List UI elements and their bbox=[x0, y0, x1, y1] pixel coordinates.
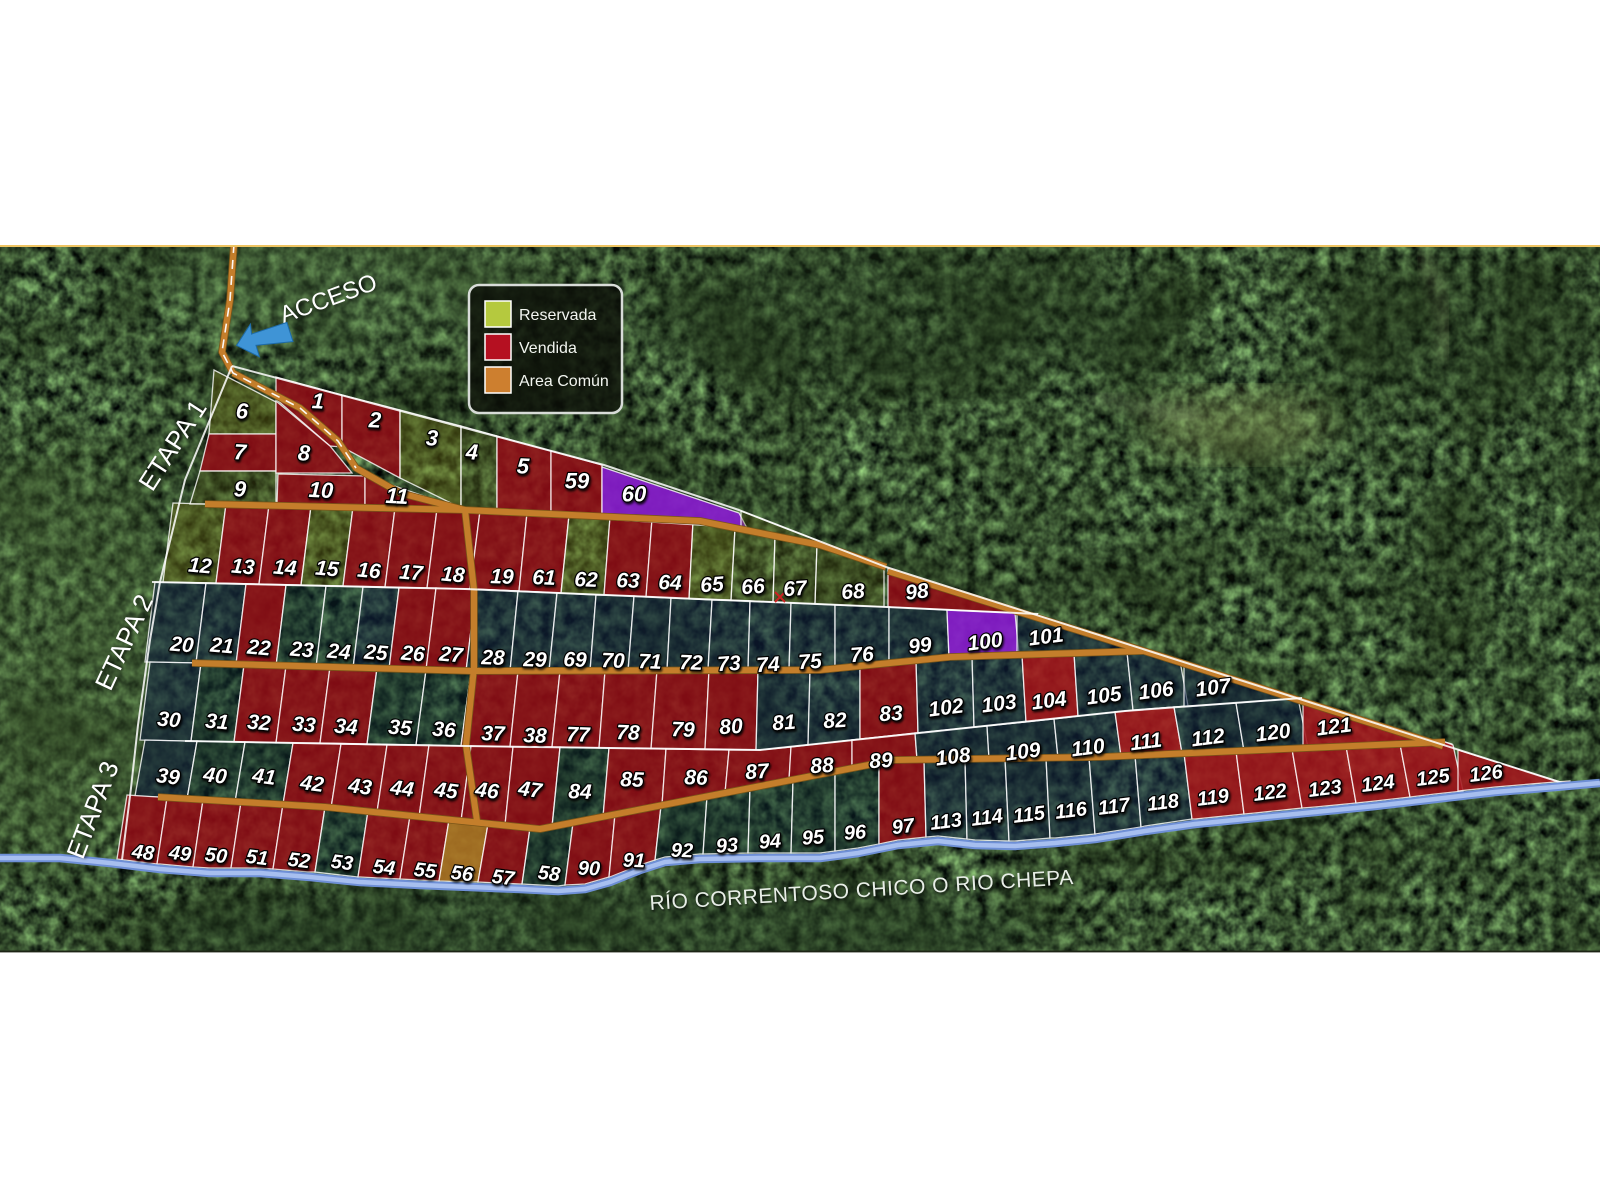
svg-text:124: 124 bbox=[1360, 771, 1396, 797]
svg-text:33: 33 bbox=[291, 713, 317, 738]
svg-text:29: 29 bbox=[522, 648, 547, 672]
svg-text:63: 63 bbox=[616, 569, 640, 593]
svg-text:122: 122 bbox=[1252, 780, 1288, 806]
svg-text:37: 37 bbox=[481, 722, 506, 746]
svg-text:105: 105 bbox=[1085, 682, 1123, 709]
svg-text:123: 123 bbox=[1307, 776, 1343, 802]
svg-text:96: 96 bbox=[843, 821, 868, 845]
svg-text:28: 28 bbox=[480, 646, 505, 670]
svg-text:59: 59 bbox=[565, 469, 590, 494]
svg-text:112: 112 bbox=[1190, 725, 1226, 752]
svg-text:94: 94 bbox=[758, 830, 782, 853]
svg-text:44: 44 bbox=[388, 776, 415, 802]
svg-text:1: 1 bbox=[311, 388, 325, 414]
svg-text:31: 31 bbox=[204, 710, 229, 735]
svg-text:16: 16 bbox=[356, 559, 382, 584]
svg-text:65: 65 bbox=[700, 573, 725, 598]
svg-text:21: 21 bbox=[208, 633, 234, 658]
svg-text:Vendida: Vendida bbox=[519, 340, 577, 357]
svg-text:104: 104 bbox=[1030, 687, 1068, 714]
svg-text:102: 102 bbox=[927, 694, 965, 721]
svg-text:35: 35 bbox=[387, 716, 413, 741]
svg-text:23: 23 bbox=[288, 637, 315, 662]
svg-text:50: 50 bbox=[204, 844, 229, 869]
svg-text:10: 10 bbox=[308, 477, 335, 503]
svg-text:3: 3 bbox=[425, 425, 439, 451]
svg-text:92: 92 bbox=[670, 840, 693, 863]
svg-text:60: 60 bbox=[622, 482, 647, 507]
svg-text:27: 27 bbox=[437, 642, 465, 667]
svg-text:56: 56 bbox=[450, 862, 476, 887]
svg-text:117: 117 bbox=[1097, 794, 1132, 820]
svg-text:32: 32 bbox=[246, 711, 272, 736]
svg-text:18: 18 bbox=[440, 563, 466, 588]
svg-text:61: 61 bbox=[532, 566, 556, 590]
svg-text:100: 100 bbox=[966, 628, 1004, 655]
svg-text:36: 36 bbox=[431, 718, 457, 743]
svg-text:40: 40 bbox=[201, 763, 228, 789]
svg-text:11: 11 bbox=[385, 483, 409, 509]
svg-text:46: 46 bbox=[473, 778, 500, 804]
svg-text:51: 51 bbox=[245, 846, 270, 871]
svg-text:68: 68 bbox=[841, 580, 866, 605]
svg-text:87: 87 bbox=[745, 760, 771, 785]
svg-text:108: 108 bbox=[934, 743, 972, 770]
svg-text:70: 70 bbox=[601, 649, 625, 673]
svg-text:41: 41 bbox=[250, 764, 277, 790]
svg-text:113: 113 bbox=[929, 809, 963, 835]
svg-text:49: 49 bbox=[167, 842, 194, 867]
svg-text:19: 19 bbox=[490, 565, 514, 589]
svg-text:126: 126 bbox=[1468, 761, 1505, 787]
svg-text:101: 101 bbox=[1027, 623, 1065, 650]
svg-text:17: 17 bbox=[398, 561, 425, 586]
svg-text:90: 90 bbox=[577, 858, 600, 881]
svg-text:82: 82 bbox=[823, 709, 848, 734]
svg-text:72: 72 bbox=[679, 651, 703, 675]
svg-text:39: 39 bbox=[155, 764, 181, 790]
svg-text:38: 38 bbox=[523, 724, 547, 748]
svg-text:25: 25 bbox=[362, 640, 389, 665]
svg-text:121: 121 bbox=[1315, 713, 1353, 740]
svg-text:57: 57 bbox=[491, 866, 517, 891]
svg-text:62: 62 bbox=[574, 568, 598, 592]
svg-text:4: 4 bbox=[464, 439, 479, 465]
svg-text:109: 109 bbox=[1004, 738, 1042, 765]
svg-text:2: 2 bbox=[367, 407, 382, 433]
svg-text:24: 24 bbox=[325, 639, 352, 664]
svg-text:88: 88 bbox=[810, 754, 835, 779]
svg-text:91: 91 bbox=[622, 850, 645, 873]
svg-text:34: 34 bbox=[333, 715, 359, 740]
svg-text:83: 83 bbox=[879, 702, 904, 727]
svg-text:103: 103 bbox=[980, 690, 1018, 717]
svg-text:22: 22 bbox=[245, 635, 272, 660]
svg-text:5: 5 bbox=[516, 453, 530, 479]
svg-text:15: 15 bbox=[314, 557, 340, 582]
svg-text:75: 75 bbox=[798, 650, 823, 675]
svg-text:67: 67 bbox=[783, 577, 809, 602]
svg-text:6: 6 bbox=[235, 398, 249, 424]
svg-text:106: 106 bbox=[1137, 677, 1175, 704]
svg-text:119: 119 bbox=[1196, 785, 1231, 811]
svg-text:85: 85 bbox=[620, 768, 644, 792]
svg-text:71: 71 bbox=[638, 650, 662, 674]
svg-text:12: 12 bbox=[187, 554, 213, 579]
svg-text:14: 14 bbox=[272, 556, 298, 581]
svg-text:84: 84 bbox=[568, 780, 592, 804]
svg-text:116: 116 bbox=[1054, 798, 1089, 824]
svg-text:93: 93 bbox=[715, 834, 739, 857]
svg-text:26: 26 bbox=[399, 641, 426, 666]
svg-text:114: 114 bbox=[970, 805, 1004, 831]
svg-text:64: 64 bbox=[658, 571, 682, 595]
svg-text:48: 48 bbox=[130, 841, 157, 866]
svg-text:77: 77 bbox=[566, 723, 591, 747]
svg-text:43: 43 bbox=[346, 774, 373, 800]
svg-text:81: 81 bbox=[772, 711, 797, 736]
svg-text:30: 30 bbox=[156, 708, 182, 733]
svg-text:45: 45 bbox=[432, 778, 459, 804]
svg-text:76: 76 bbox=[850, 643, 875, 668]
svg-text:80: 80 bbox=[719, 715, 744, 740]
svg-text:74: 74 bbox=[756, 653, 781, 678]
svg-text:8: 8 bbox=[297, 440, 311, 466]
svg-text:98: 98 bbox=[904, 579, 930, 605]
svg-text:97: 97 bbox=[891, 815, 917, 840]
svg-text:55: 55 bbox=[413, 859, 439, 884]
svg-text:78: 78 bbox=[616, 721, 640, 745]
svg-text:54: 54 bbox=[372, 856, 397, 881]
svg-text:115: 115 bbox=[1012, 802, 1047, 828]
svg-text:111: 111 bbox=[1129, 729, 1163, 756]
svg-text:42: 42 bbox=[298, 771, 325, 797]
svg-text:52: 52 bbox=[287, 849, 312, 874]
svg-text:118: 118 bbox=[1146, 790, 1181, 816]
svg-text:Area Común: Area Común bbox=[519, 373, 609, 390]
svg-text:58: 58 bbox=[537, 862, 563, 887]
svg-text:66: 66 bbox=[741, 575, 766, 600]
svg-text:13: 13 bbox=[230, 555, 256, 580]
svg-text:53: 53 bbox=[330, 851, 355, 876]
svg-text:89: 89 bbox=[869, 749, 894, 774]
svg-text:73: 73 bbox=[717, 652, 742, 677]
svg-text:20: 20 bbox=[168, 632, 195, 657]
svg-text:9: 9 bbox=[233, 476, 247, 502]
svg-text:120: 120 bbox=[1254, 719, 1292, 746]
svg-text:99: 99 bbox=[907, 633, 933, 659]
svg-text:110: 110 bbox=[1070, 735, 1106, 762]
svg-text:95: 95 bbox=[801, 826, 826, 850]
svg-text:69: 69 bbox=[563, 648, 587, 672]
svg-text:86: 86 bbox=[684, 766, 708, 790]
svg-text:79: 79 bbox=[671, 718, 695, 742]
svg-text:107: 107 bbox=[1194, 674, 1233, 701]
svg-text:125: 125 bbox=[1415, 765, 1452, 791]
svg-text:Reservada: Reservada bbox=[519, 307, 596, 324]
svg-text:47: 47 bbox=[516, 777, 544, 803]
